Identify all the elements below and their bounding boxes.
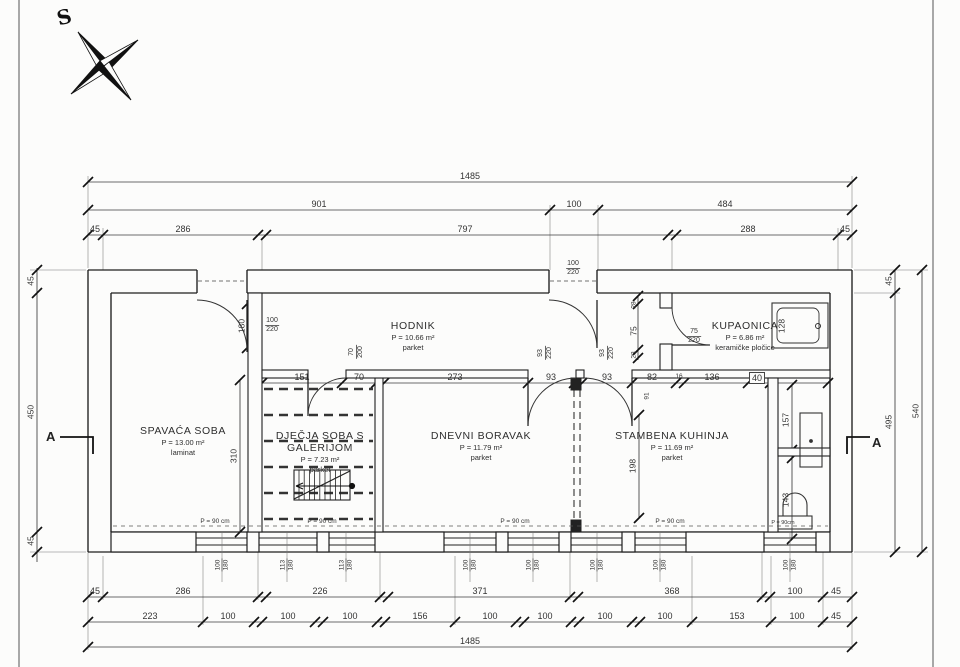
dim-label: 28 <box>630 301 639 308</box>
dim-label: 157 <box>782 413 791 427</box>
section-marker-a-left: A <box>46 429 55 444</box>
room-floor: parket <box>607 453 737 462</box>
room-area: P = 11.79 m² <box>421 443 541 452</box>
dim-label: 93 <box>546 372 556 382</box>
door-size-label: 70200 <box>348 345 364 359</box>
dim-label: 273 <box>447 372 462 382</box>
room-label-stambena-kuhinja: STAMBENA KUHINJA P = 11.69 m² parket <box>607 430 737 462</box>
dim-label: 100 <box>220 611 235 621</box>
window-height: 180 <box>791 559 798 572</box>
dim-label: 136 <box>704 372 719 382</box>
dim-label: 100 <box>789 611 804 621</box>
dim-label: 495 <box>885 415 894 429</box>
door-width: 100 <box>265 317 279 326</box>
dim-label: 901 <box>311 199 326 209</box>
window-width: 100 <box>215 559 223 572</box>
room-label-hodnik: HODNIK P = 10.66 m² parket <box>363 320 463 352</box>
room-area: P = 10.66 m² <box>363 333 463 342</box>
dim-label: 484 <box>717 199 732 209</box>
dim-label: 371 <box>472 586 487 596</box>
dim-label: 45 <box>27 536 36 545</box>
door-width: 100 <box>566 260 580 269</box>
window-height: 180 <box>471 559 478 572</box>
window-width: 100 <box>526 559 534 572</box>
parapet-label: P = 90 cm <box>307 518 336 525</box>
dim-label: 100 <box>482 611 497 621</box>
window-size-label: 113180 <box>339 559 354 572</box>
door-height: 220 <box>687 337 701 345</box>
window-height: 180 <box>223 559 230 572</box>
dim-label: 368 <box>664 586 679 596</box>
dim-label: 180 <box>238 319 247 333</box>
window-width: 113 <box>339 559 347 572</box>
section-marker-a-right: A <box>872 435 881 450</box>
door-size-label: 93220 <box>537 346 553 360</box>
dim-label: 93 <box>602 372 612 382</box>
room-name: STAMBENA KUHINJA <box>607 430 737 442</box>
dim-label: 28 <box>630 351 639 358</box>
door-size-label: 75220 <box>687 328 701 344</box>
window-size-label: 100180 <box>783 559 798 572</box>
floorplan-linework <box>0 0 960 667</box>
door-size-label: 100220 <box>566 260 580 276</box>
parapet-label: P = 90cm <box>771 520 794 526</box>
dim-label: 45 <box>885 276 894 285</box>
dim-label: 45 <box>840 224 850 234</box>
room-label-djecja-soba: DJEČJA SOBA S GALERIJOM P = 7.23 m² park… <box>260 430 380 474</box>
door-height: 220 <box>566 269 580 277</box>
dim-label: 143 <box>782 493 791 507</box>
dim-label: 797 <box>457 224 472 234</box>
dim-label: 100 <box>566 199 581 209</box>
room-area: P = 13.00 m² <box>113 438 253 447</box>
door-height: 220 <box>546 346 554 360</box>
dim-label: 310 <box>230 449 239 463</box>
window-height: 180 <box>347 559 354 572</box>
door-width: 93 <box>537 346 546 360</box>
room-floor: parket <box>260 465 380 474</box>
dim-label: 91 <box>643 392 652 399</box>
dim-label: 288 <box>740 224 755 234</box>
dim-label: 286 <box>175 224 190 234</box>
room-name: SPAVAĆA SOBA <box>113 425 253 437</box>
parapet-label: P = 90 cm <box>655 518 684 525</box>
dim-label: 540 <box>912 404 921 418</box>
dim-label: 70 <box>354 372 364 382</box>
window-size-label: 100180 <box>463 559 478 572</box>
dim-label: 156 <box>412 611 427 621</box>
window-size-label: 100180 <box>590 559 605 572</box>
door-width: 75 <box>687 328 701 337</box>
dim-label: 100 <box>537 611 552 621</box>
window-height: 180 <box>661 559 668 572</box>
dim-label: 45 <box>831 611 841 621</box>
dim-label: 100 <box>280 611 295 621</box>
room-name: DJEČJA SOBA S <box>260 430 380 442</box>
dim-label: 82 <box>647 372 657 382</box>
dim-label: 100 <box>787 586 802 596</box>
dim-label: 226 <box>312 586 327 596</box>
room-floor: keramičke pločice <box>693 343 797 352</box>
door-size-label: 93220 <box>599 346 615 360</box>
dim-label: 100 <box>342 611 357 621</box>
room-area: P = 6.86 m² <box>693 333 797 342</box>
dim-label: 151 <box>294 372 309 382</box>
door-width: 93 <box>599 346 608 360</box>
dim-label: 16 <box>675 372 682 382</box>
dim-label: 1485 <box>460 171 480 181</box>
room-floor: parket <box>363 343 463 352</box>
room-name: HODNIK <box>363 320 463 332</box>
dim-label: 128 <box>778 319 787 333</box>
dim-label: 153 <box>729 611 744 621</box>
door-height: 200 <box>357 345 365 359</box>
room-name: DNEVNI BORAVAK <box>421 430 541 442</box>
floorplan-sheet: S SPAVAĆA SOBA P = 13.00 m² laminat DJEČ… <box>0 0 960 667</box>
dim-label: 198 <box>629 459 638 473</box>
room-area: P = 7.23 m² <box>260 455 380 464</box>
door-height: 220 <box>265 326 279 334</box>
room-name-line2: GALERIJOM <box>260 442 380 454</box>
dim-label: 45 <box>831 586 841 596</box>
dim-label: 100 <box>597 611 612 621</box>
door-width: 70 <box>348 345 357 359</box>
room-label-dnevni-boravak: DNEVNI BORAVAK P = 11.79 m² parket <box>421 430 541 462</box>
window-height: 180 <box>534 559 541 572</box>
window-height: 180 <box>288 559 295 572</box>
door-height: 220 <box>608 346 616 360</box>
window-size-label: 100180 <box>215 559 230 572</box>
room-area: P = 11.69 m² <box>607 443 737 452</box>
window-width: 113 <box>280 559 288 572</box>
dim-label: 45 <box>27 276 36 285</box>
window-height: 180 <box>598 559 605 572</box>
dim-label: 1485 <box>460 636 480 646</box>
window-size-label: 100180 <box>526 559 541 572</box>
dim-label: 45 <box>90 224 100 234</box>
dim-label: 223 <box>142 611 157 621</box>
window-width: 100 <box>783 559 791 572</box>
window-width: 100 <box>590 559 598 572</box>
dim-label: 75 <box>630 326 639 335</box>
dim-label: 286 <box>175 586 190 596</box>
dim-label: 450 <box>27 405 36 419</box>
window-size-label: 113180 <box>280 559 295 572</box>
parapet-label: P = 90 cm <box>200 518 229 525</box>
door-size-label: 100220 <box>265 317 279 333</box>
dim-label: 45 <box>90 586 100 596</box>
dim-label: 40 <box>749 372 765 384</box>
parapet-label: P = 90 cm <box>500 518 529 525</box>
room-floor: parket <box>421 453 541 462</box>
window-width: 100 <box>463 559 471 572</box>
window-width: 100 <box>653 559 661 572</box>
dim-label: 100 <box>657 611 672 621</box>
window-size-label: 100180 <box>653 559 668 572</box>
